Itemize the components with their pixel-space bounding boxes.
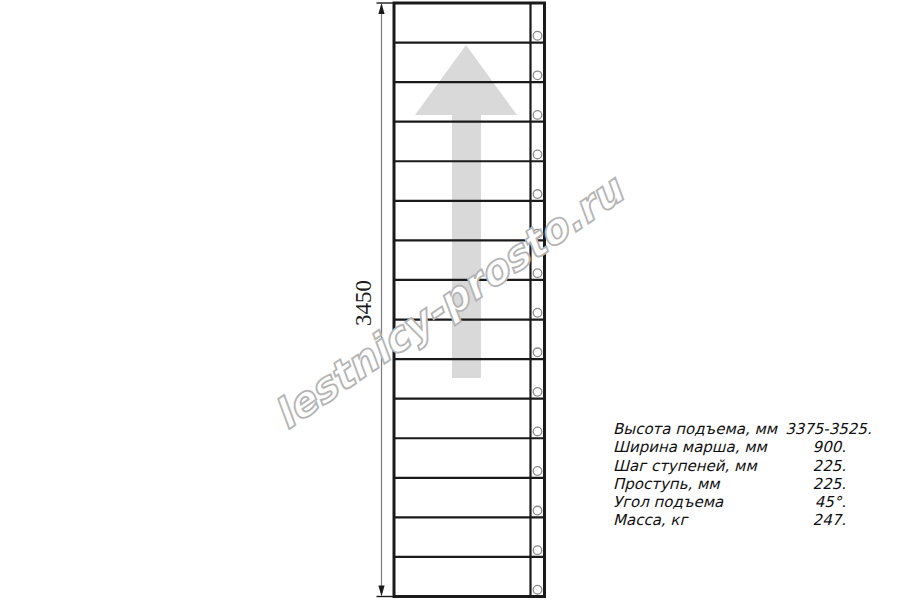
fastener-circle	[533, 308, 542, 317]
fastener-circle	[533, 427, 542, 436]
spec-table: Высота подъема, мм 3375-3525. Ширина мар…	[613, 420, 846, 530]
spec-value: 247.	[813, 511, 846, 529]
fastener-circle	[533, 71, 542, 80]
arrow-head	[415, 45, 517, 115]
spec-row-mass: Масса, кг 247.	[613, 511, 846, 529]
fastener-circle	[533, 585, 542, 594]
fastener-circle	[533, 467, 542, 476]
spec-label: Шаг ступеней, мм	[613, 457, 757, 475]
fastener-circle	[533, 111, 542, 120]
spec-value: 3375-3525.	[785, 420, 872, 438]
spec-row-width: Ширина марша, мм 900.	[613, 438, 846, 456]
fastener-circle	[533, 190, 542, 199]
fastener-circle	[533, 150, 542, 159]
spec-row-tread: Проступь, мм 225.	[613, 475, 846, 493]
dimension-arrow-top	[378, 3, 384, 14]
dimension-label: 3450	[351, 280, 376, 326]
spec-row-height: Высота подъема, мм 3375-3525.	[613, 420, 846, 438]
spec-row-step: Шаг ступеней, мм 225.	[613, 457, 846, 475]
spec-label: Проступь, мм	[613, 475, 720, 493]
dimension-3450: 3450	[351, 3, 394, 597]
dimension-arrow-bottom	[378, 586, 384, 597]
fastener-circle	[533, 348, 542, 357]
fastener-circle	[533, 546, 542, 555]
spec-value: 225.	[813, 457, 846, 475]
fastener-circle	[533, 388, 542, 397]
spec-value: 900.	[813, 438, 846, 456]
spec-value: 225.	[813, 475, 846, 493]
spec-row-angle: Угол подъема 45°.	[613, 493, 846, 511]
spec-label: Угол подъема	[613, 493, 723, 511]
arrow-shaft	[452, 113, 481, 378]
stair-fasteners	[533, 31, 542, 594]
spec-label: Высота подъема, мм	[613, 420, 777, 438]
fastener-circle	[533, 31, 542, 40]
fastener-circle	[533, 506, 542, 515]
spec-value: 45°.	[815, 493, 846, 511]
spec-label: Ширина марша, мм	[613, 438, 767, 456]
spec-label: Масса, кг	[613, 511, 687, 529]
